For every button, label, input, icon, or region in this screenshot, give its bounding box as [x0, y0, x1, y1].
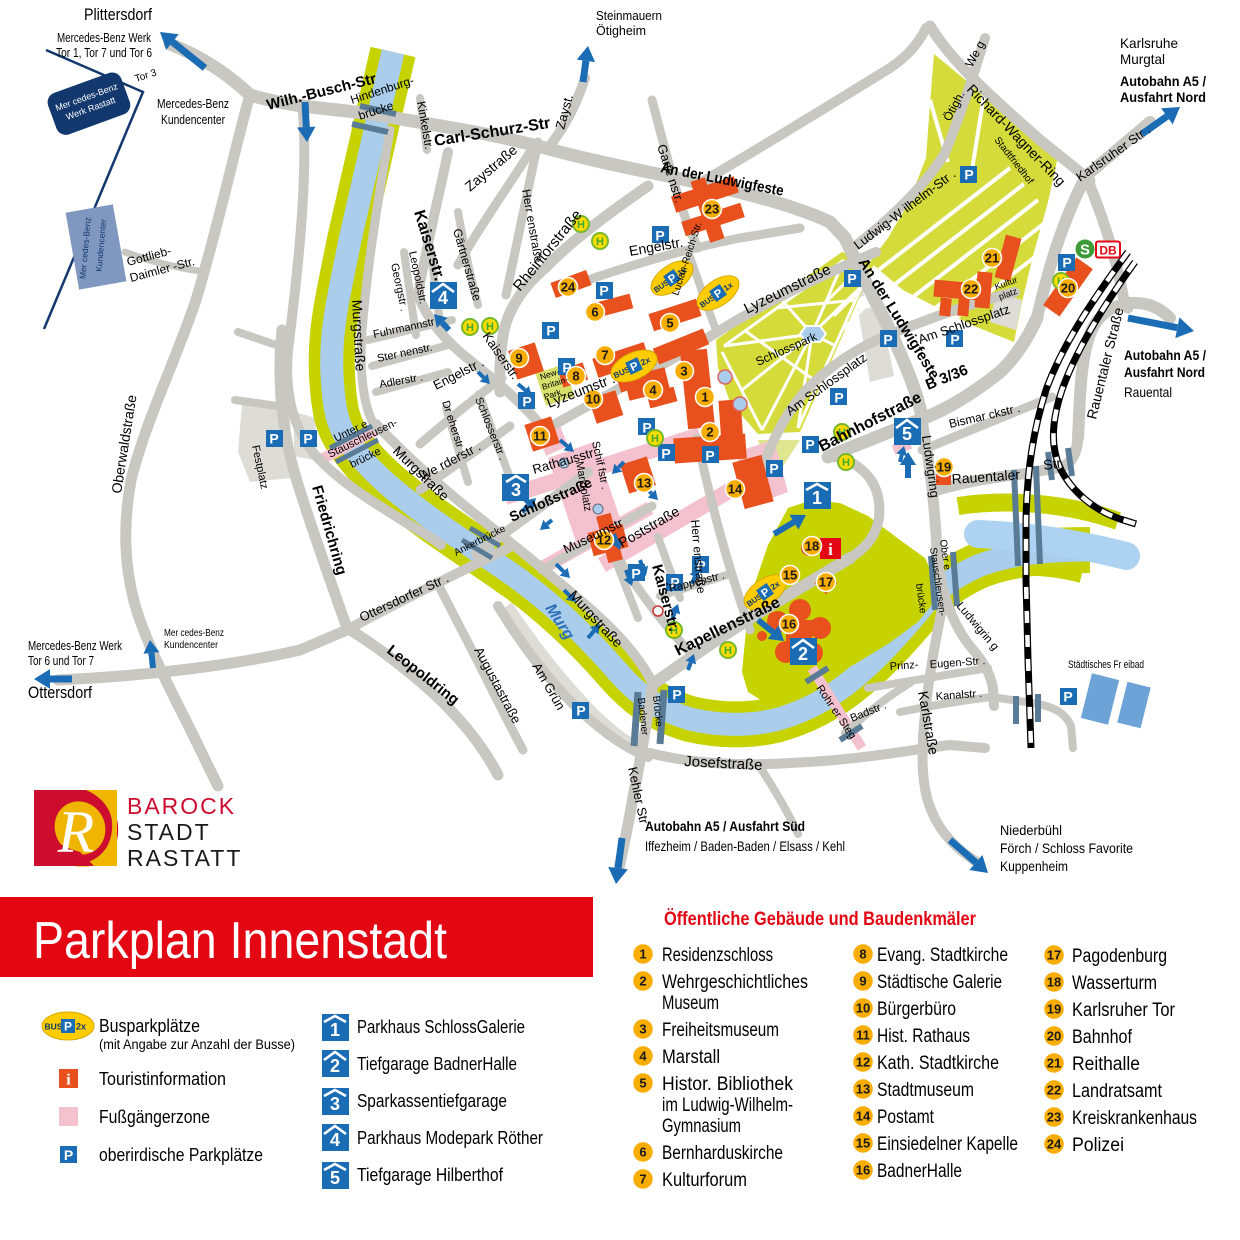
svg-text:2x: 2x	[76, 1022, 86, 1032]
svg-text:22: 22	[964, 282, 978, 297]
svg-text:RASTATT: RASTATT	[127, 845, 242, 871]
svg-text:24: 24	[1047, 1137, 1062, 1152]
svg-text:15: 15	[783, 568, 797, 583]
svg-text:7: 7	[639, 1172, 646, 1187]
svg-text:H: H	[596, 236, 604, 248]
svg-text:1: 1	[330, 1020, 340, 1040]
svg-text:16: 16	[782, 617, 796, 632]
svg-text:5: 5	[639, 1076, 646, 1091]
svg-text:Stadtmuseum: Stadtmuseum	[877, 1080, 974, 1101]
svg-text:Parkplan Innenstadt: Parkplan Innenstadt	[33, 912, 447, 970]
svg-text:Tor 1, Tor 7 und Tor 6: Tor 1, Tor 7 und Tor 6	[56, 45, 152, 60]
svg-text:Öffentliche Gebäude und Bauden: Öffentliche Gebäude und Baudenkmäler	[664, 909, 977, 930]
svg-text:Niederbühl: Niederbühl	[1000, 822, 1062, 838]
svg-text:17: 17	[819, 575, 833, 590]
svg-text:11: 11	[533, 429, 547, 444]
svg-text:Kundencenter: Kundencenter	[161, 112, 226, 127]
svg-text:P: P	[303, 431, 312, 447]
svg-text:S: S	[1080, 242, 1090, 259]
svg-text:im Ludwig-Wilhelm-: im Ludwig-Wilhelm-	[662, 1095, 793, 1116]
svg-text:6: 6	[639, 1145, 646, 1160]
svg-text:Ausfahrt Nord: Ausfahrt Nord	[1120, 89, 1206, 105]
svg-text:22: 22	[1047, 1083, 1061, 1098]
svg-text:Tiefgarage Hilberthof: Tiefgarage Hilberthof	[357, 1165, 504, 1185]
svg-text:Bahnhof: Bahnhof	[1072, 1027, 1133, 1048]
svg-text:8: 8	[859, 947, 866, 962]
svg-text:P: P	[769, 461, 778, 477]
svg-text:P: P	[631, 566, 640, 582]
svg-text:P: P	[546, 323, 555, 339]
svg-text:Str.: Str.	[1042, 454, 1065, 473]
svg-text:P: P	[834, 390, 843, 406]
svg-text:Prinz-: Prinz-	[889, 659, 919, 673]
svg-text:Bernharduskirche: Bernharduskirche	[662, 1143, 783, 1164]
svg-text:Mercedes-Benz Werk: Mercedes-Benz Werk	[57, 30, 151, 45]
svg-text:Evang. Stadtkirche: Evang. Stadtkirche	[877, 945, 1008, 966]
svg-text:5: 5	[330, 1168, 340, 1188]
svg-text:21: 21	[985, 251, 999, 266]
svg-text:1: 1	[639, 947, 646, 962]
svg-text:Karlsruhe: Karlsruhe	[1120, 35, 1178, 51]
svg-text:23: 23	[705, 202, 719, 217]
svg-text:1: 1	[701, 390, 708, 405]
svg-text:8: 8	[572, 369, 579, 384]
svg-text:Einsiedelner Kapelle: Einsiedelner Kapelle	[877, 1134, 1018, 1155]
svg-text:13: 13	[637, 476, 651, 491]
svg-text:18: 18	[805, 539, 819, 554]
svg-text:Museum: Museum	[662, 993, 719, 1014]
svg-text:P: P	[964, 167, 973, 183]
svg-text:P: P	[883, 332, 892, 348]
svg-text:Autobahn A5 / Ausfahrt Süd: Autobahn A5 / Ausfahrt Süd	[645, 818, 805, 834]
svg-text:Histor. Bibliothek: Histor. Bibliothek	[662, 1074, 793, 1095]
svg-text:20: 20	[1047, 1029, 1061, 1044]
svg-text:4: 4	[639, 1049, 647, 1064]
svg-text:Städtisches Fr eibad: Städtisches Fr eibad	[1068, 659, 1144, 671]
svg-text:Autobahn A5 /: Autobahn A5 /	[1124, 347, 1206, 363]
svg-text:Reithalle: Reithalle	[1072, 1054, 1140, 1075]
svg-text:3: 3	[639, 1022, 646, 1037]
svg-text:Kreiskrankenhaus: Kreiskrankenhaus	[1072, 1108, 1197, 1129]
svg-text:BUS: BUS	[45, 1022, 63, 1032]
svg-text:Fußgängerzone: Fußgängerzone	[99, 1107, 210, 1127]
svg-text:Ötigheim: Ötigheim	[596, 23, 646, 38]
svg-text:Ottersdorf: Ottersdorf	[28, 683, 92, 702]
svg-text:H: H	[842, 457, 850, 469]
svg-text:10: 10	[856, 1001, 870, 1016]
svg-text:P: P	[705, 448, 714, 464]
svg-text:P: P	[64, 1020, 72, 1034]
svg-text:Residenzschloss: Residenzschloss	[662, 945, 773, 966]
svg-text:Busparkplätze: Busparkplätze	[99, 1016, 200, 1036]
svg-text:13: 13	[856, 1082, 870, 1097]
svg-text:P: P	[1062, 255, 1071, 271]
svg-text:Rauental: Rauental	[1124, 384, 1172, 400]
svg-text:Postamt: Postamt	[877, 1107, 935, 1128]
svg-text:Parkhaus Modepark Röther: Parkhaus Modepark Röther	[357, 1128, 543, 1148]
svg-text:P: P	[661, 446, 670, 462]
svg-text:2: 2	[706, 425, 713, 440]
svg-text:Sparkassentiefgarage: Sparkassentiefgarage	[357, 1091, 507, 1111]
svg-text:5: 5	[902, 424, 912, 444]
svg-text:Tiefgarage BadnerHalle: Tiefgarage BadnerHalle	[357, 1054, 517, 1074]
svg-text:P: P	[576, 703, 585, 719]
svg-text:Kuppenheim: Kuppenheim	[1000, 858, 1068, 874]
svg-text:i: i	[828, 540, 833, 559]
svg-text:DB: DB	[1099, 244, 1117, 258]
svg-text:oberirdische Parkplätze: oberirdische Parkplätze	[99, 1145, 263, 1165]
svg-text:14: 14	[856, 1109, 871, 1124]
svg-text:Touristinformation: Touristinformation	[99, 1069, 226, 1089]
svg-text:15: 15	[856, 1136, 870, 1151]
svg-text:STADT: STADT	[127, 819, 211, 845]
svg-text:Plittersdorf: Plittersdorf	[84, 5, 152, 24]
svg-text:Gymnasium: Gymnasium	[662, 1116, 741, 1137]
svg-text:Kath. Stadtkirche: Kath. Stadtkirche	[877, 1053, 999, 1074]
svg-text:Karlsruher Tor: Karlsruher Tor	[1072, 1000, 1176, 1021]
svg-text:P: P	[805, 437, 814, 453]
svg-text:H: H	[466, 322, 474, 334]
svg-text:19: 19	[1047, 1002, 1061, 1017]
svg-text:Marstall: Marstall	[662, 1047, 720, 1068]
svg-text:Autobahn A5 /: Autobahn A5 /	[1120, 73, 1206, 89]
svg-text:20: 20	[1061, 281, 1075, 296]
svg-text:Kulturforum: Kulturforum	[662, 1170, 747, 1191]
svg-text:P: P	[522, 394, 531, 410]
svg-text:H: H	[724, 645, 732, 657]
svg-text:9: 9	[859, 974, 866, 989]
svg-text:Wasserturm: Wasserturm	[1072, 973, 1157, 994]
svg-text:Landratsamt: Landratsamt	[1072, 1081, 1163, 1102]
svg-text:Ausfahrt Nord: Ausfahrt Nord	[1124, 364, 1205, 380]
svg-text:21: 21	[1047, 1056, 1061, 1071]
svg-text:H: H	[651, 433, 659, 445]
svg-text:R: R	[57, 799, 95, 865]
svg-text:P: P	[672, 687, 681, 703]
svg-text:Polizei: Polizei	[1072, 1135, 1124, 1156]
svg-text:Murgtal: Murgtal	[1120, 51, 1165, 67]
svg-text:Bürgerbüro: Bürgerbüro	[877, 999, 956, 1020]
svg-text:BadnerHalle: BadnerHalle	[877, 1161, 962, 1182]
svg-text:P: P	[847, 271, 856, 287]
svg-text:Wehrgeschichtliches: Wehrgeschichtliches	[662, 972, 808, 993]
svg-text:18: 18	[1047, 975, 1061, 990]
svg-text:14: 14	[728, 482, 743, 497]
svg-text:i: i	[66, 1072, 71, 1089]
svg-text:17: 17	[1047, 948, 1061, 963]
svg-text:3: 3	[511, 480, 521, 500]
svg-text:3: 3	[330, 1094, 340, 1114]
svg-text:BAROCK: BAROCK	[127, 793, 236, 819]
svg-text:Pagodenburg: Pagodenburg	[1072, 946, 1167, 967]
svg-text:4: 4	[438, 288, 448, 308]
svg-text:3: 3	[680, 364, 687, 379]
svg-text:2: 2	[330, 1056, 340, 1076]
svg-text:Mercedes-Benz Werk: Mercedes-Benz Werk	[28, 638, 122, 653]
svg-text:Freiheitsmuseum: Freiheitsmuseum	[662, 1020, 779, 1041]
svg-text:P: P	[64, 1147, 73, 1163]
svg-text:Förch / Schloss Favorite: Förch / Schloss Favorite	[1000, 840, 1133, 856]
svg-text:23: 23	[1047, 1110, 1061, 1125]
svg-text:12: 12	[856, 1055, 870, 1070]
svg-text:6: 6	[591, 305, 598, 320]
svg-text:P: P	[269, 431, 278, 447]
svg-text:24: 24	[561, 280, 576, 295]
svg-text:P: P	[599, 283, 608, 299]
svg-text:2: 2	[639, 974, 646, 989]
svg-text:Kundencenter: Kundencenter	[164, 639, 218, 651]
svg-text:Mercedes-Benz: Mercedes-Benz	[157, 96, 229, 111]
svg-text:4: 4	[649, 383, 657, 398]
svg-text:Städtische Galerie: Städtische Galerie	[877, 972, 1002, 993]
svg-text:11: 11	[856, 1028, 870, 1043]
svg-text:2: 2	[798, 644, 808, 664]
svg-text:4: 4	[330, 1130, 340, 1150]
svg-text:Tor 6 und Tor 7: Tor 6 und Tor 7	[28, 653, 94, 668]
svg-text:Hist. Rathaus: Hist. Rathaus	[877, 1026, 970, 1047]
svg-text:(mit Angabe zur Anzahl der Bus: (mit Angabe zur Anzahl der Busse)	[99, 1037, 295, 1052]
svg-text:Steinmauern: Steinmauern	[596, 8, 662, 23]
svg-text:Mer cedes-Benz: Mer cedes-Benz	[164, 627, 224, 639]
svg-text:1: 1	[812, 488, 822, 508]
svg-text:7: 7	[601, 348, 608, 363]
svg-text:5: 5	[666, 316, 673, 331]
svg-text:Iffezheim / Baden-Baden / Elsa: Iffezheim / Baden-Baden / Elsass / Kehl	[645, 838, 845, 854]
svg-text:P: P	[1063, 689, 1072, 705]
svg-text:Parkhaus SchlossGalerie: Parkhaus SchlossGalerie	[357, 1017, 525, 1037]
svg-text:16: 16	[856, 1163, 870, 1178]
